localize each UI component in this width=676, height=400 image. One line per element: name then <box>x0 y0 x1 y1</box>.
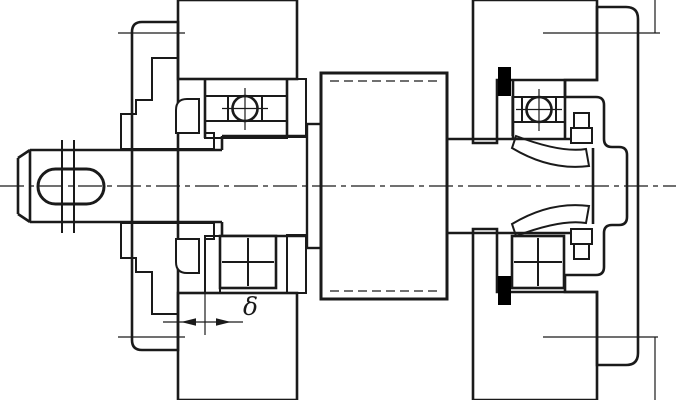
delta-gap-label: δ <box>243 292 258 321</box>
assembly-drawing: δ <box>0 0 676 400</box>
seal-bushing <box>176 239 199 273</box>
left-ball-bearing-symbol <box>220 236 276 288</box>
right-ball-bearing-symbol <box>512 236 564 288</box>
seal-bushing <box>176 99 199 133</box>
